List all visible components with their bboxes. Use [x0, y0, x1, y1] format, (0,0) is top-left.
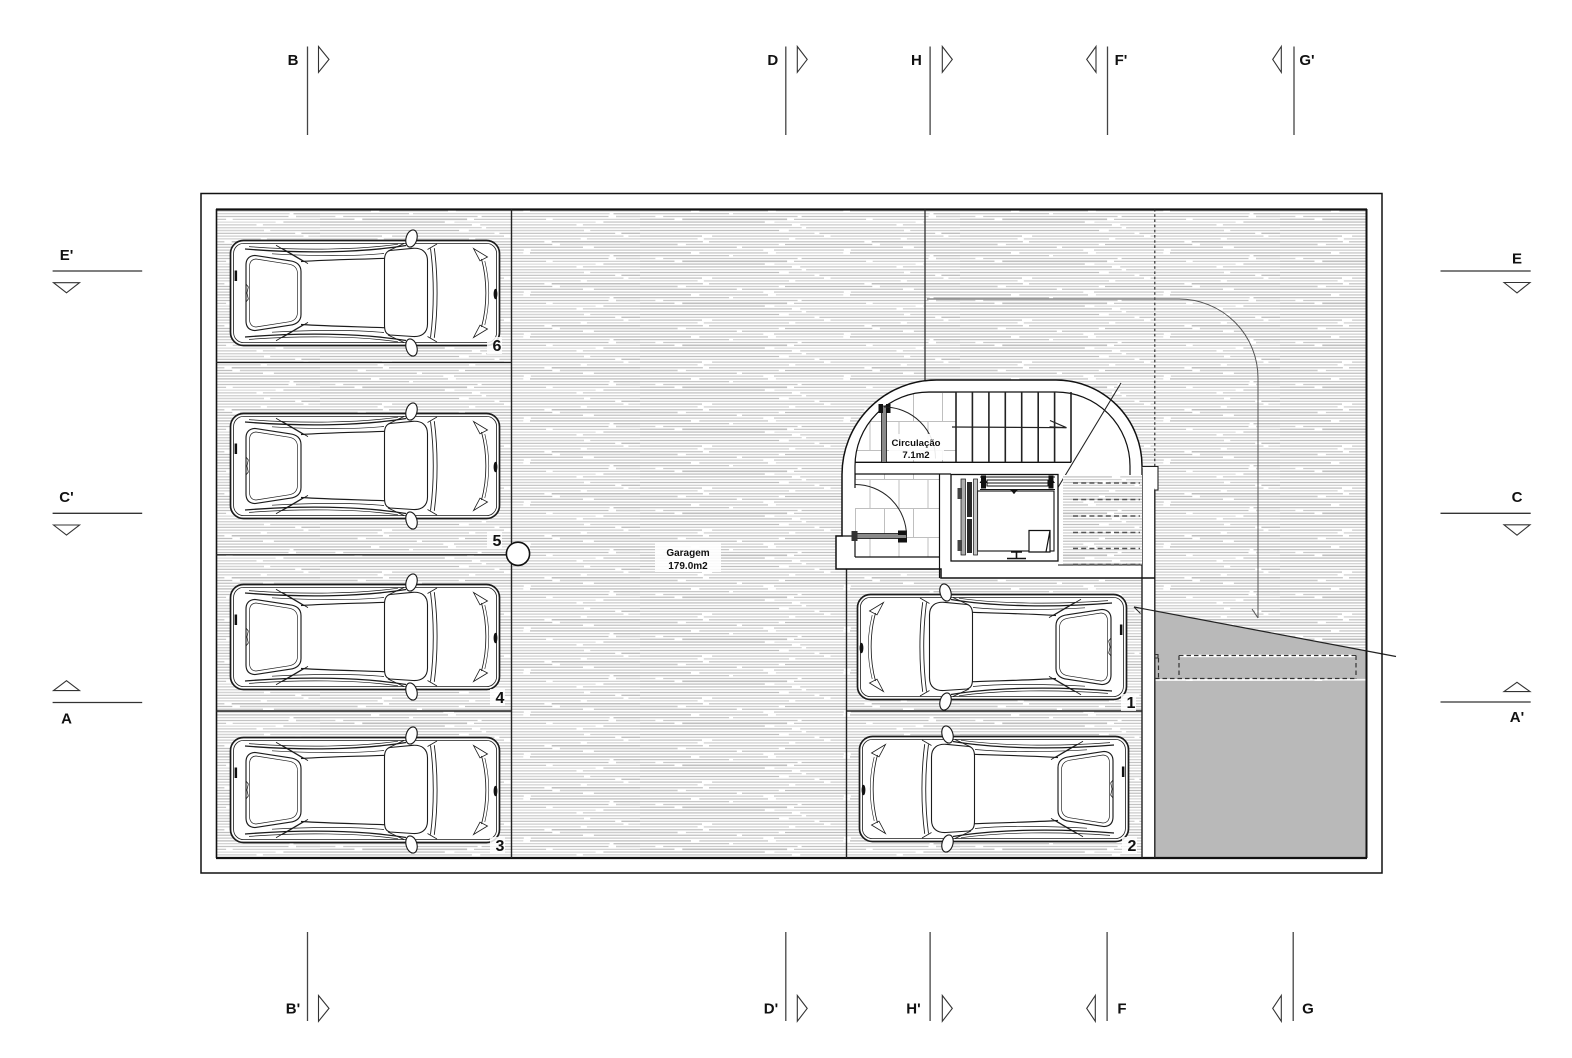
svg-text:A: A: [61, 711, 72, 728]
svg-text:G: G: [1302, 1001, 1314, 1018]
svg-text:E: E: [1512, 250, 1522, 267]
svg-text:F: F: [1117, 1001, 1126, 1018]
svg-text:179.0m2: 179.0m2: [668, 561, 708, 572]
svg-text:6: 6: [493, 338, 502, 355]
svg-text:1: 1: [1127, 695, 1136, 712]
svg-text:3: 3: [496, 838, 505, 855]
svg-text:G': G': [1299, 52, 1314, 69]
svg-text:B': B': [286, 1001, 300, 1018]
svg-text:5: 5: [493, 533, 502, 550]
svg-text:A': A': [1510, 709, 1524, 726]
svg-text:B: B: [288, 52, 299, 69]
svg-text:H': H': [906, 1001, 920, 1018]
svg-text:C: C: [1512, 489, 1523, 506]
svg-text:D': D': [764, 1001, 778, 1018]
svg-text:4: 4: [496, 690, 505, 707]
svg-text:C': C': [59, 489, 73, 506]
svg-text:2: 2: [1128, 838, 1137, 855]
svg-text:Garagem: Garagem: [666, 548, 709, 559]
svg-text:F': F': [1115, 52, 1128, 69]
svg-text:H: H: [911, 52, 922, 69]
svg-text:Circulação: Circulação: [891, 438, 940, 449]
svg-text:D: D: [767, 52, 778, 69]
svg-text:7.1m2: 7.1m2: [902, 450, 929, 461]
svg-text:E': E': [60, 247, 74, 264]
